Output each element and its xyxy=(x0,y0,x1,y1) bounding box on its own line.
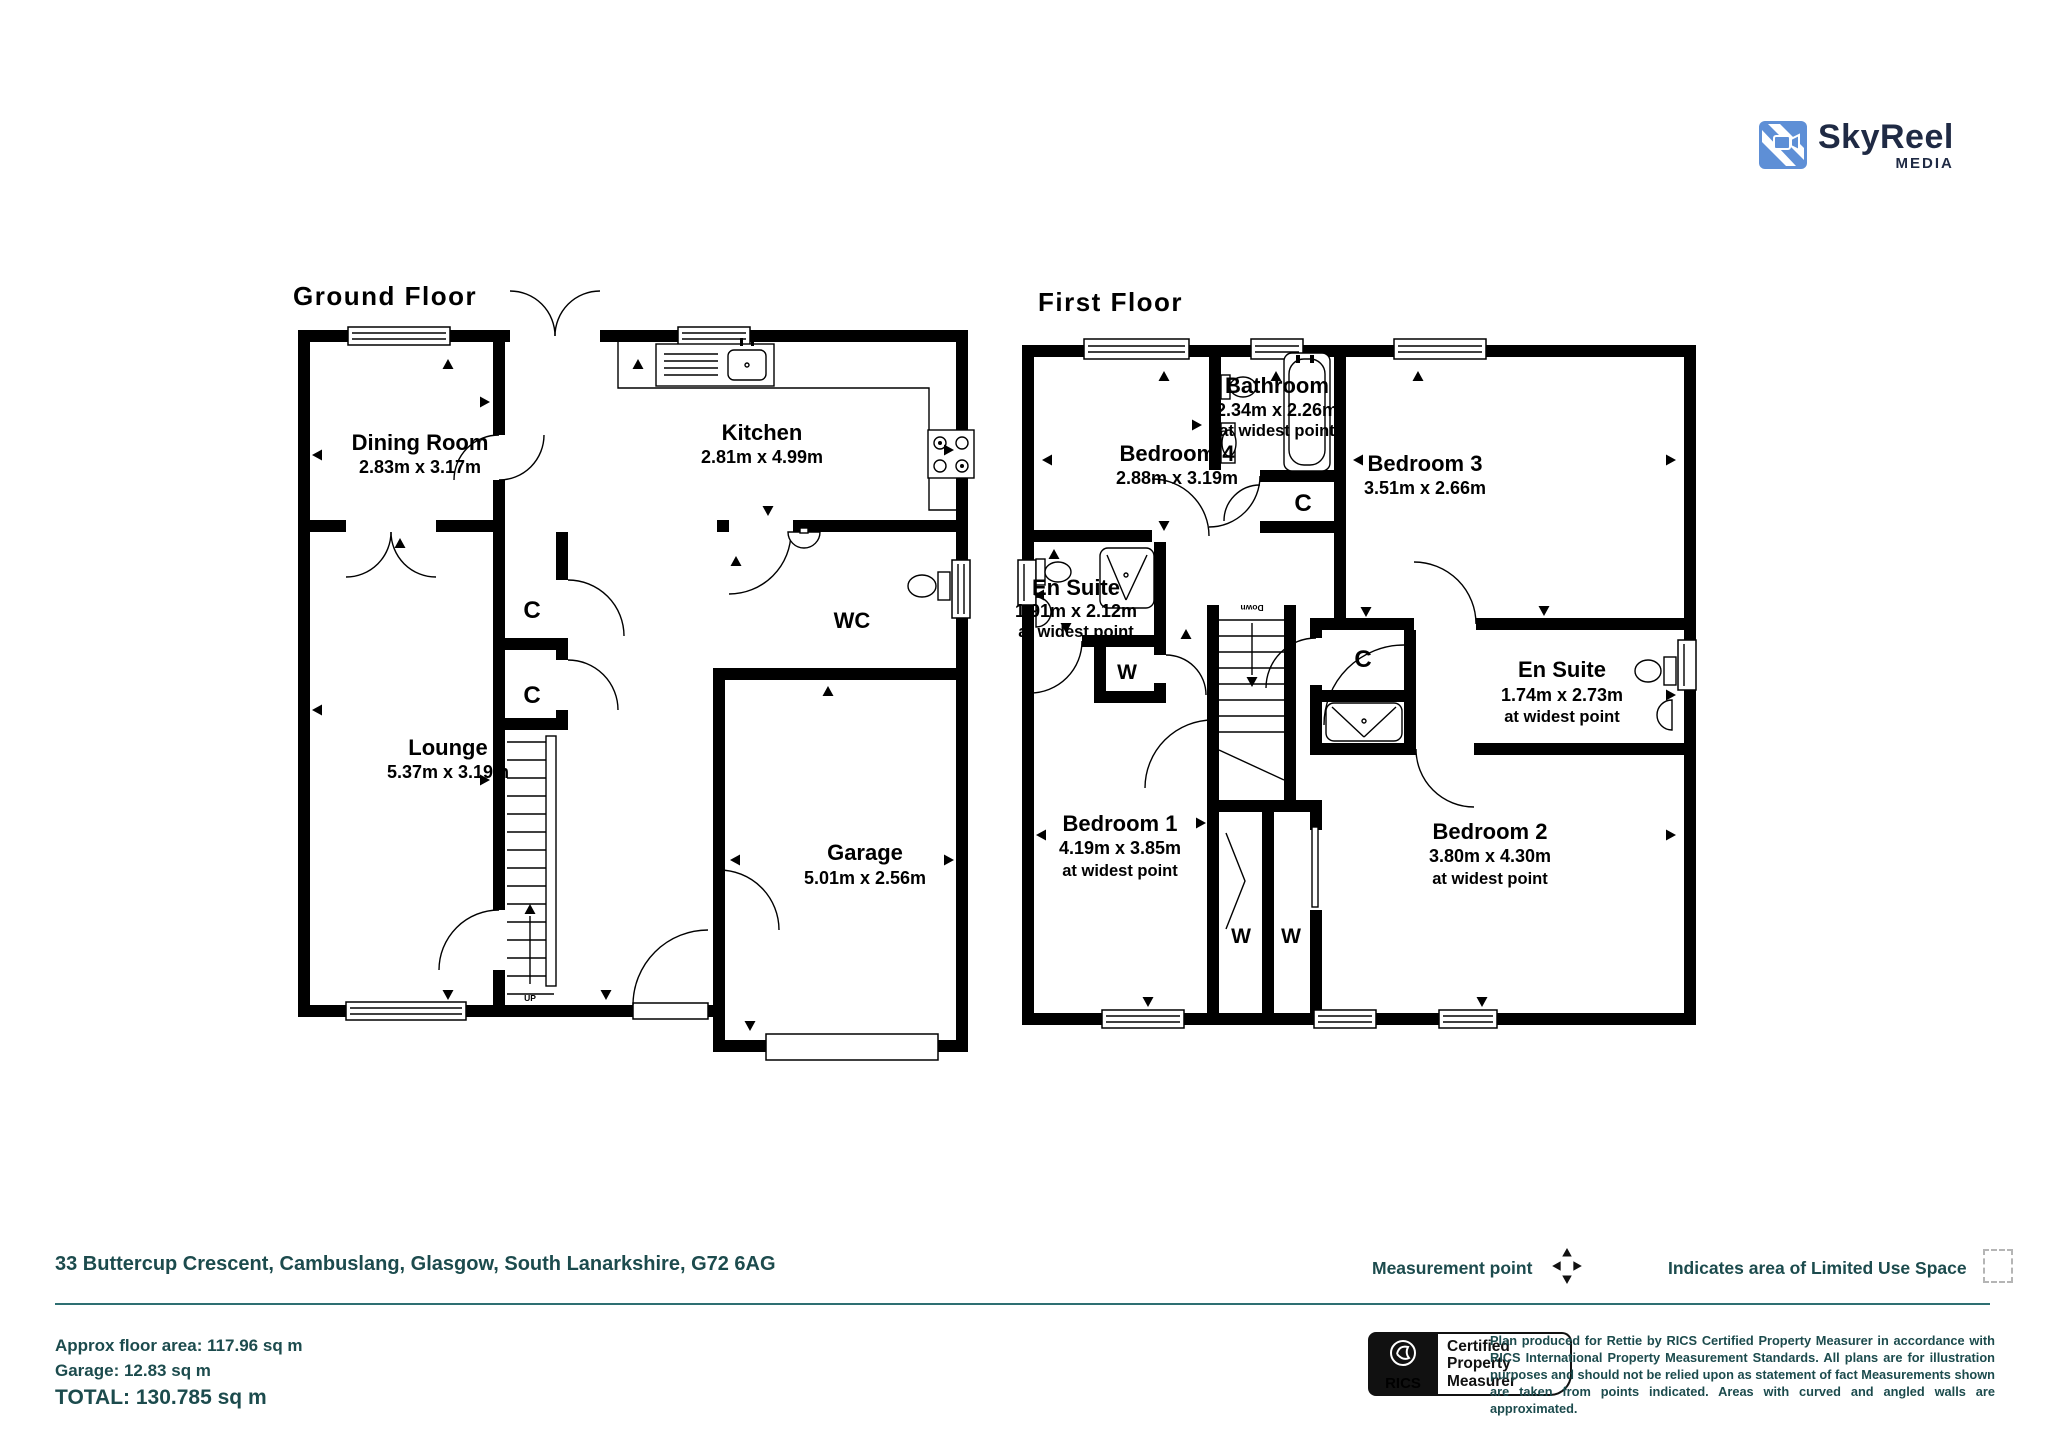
bedroom2-dims: 3.80m x 4.30m xyxy=(1429,846,1551,866)
bedroom2-note: at widest point xyxy=(1432,870,1548,888)
legend-limited-use: Indicates area of Limited Use Space xyxy=(1668,1258,1967,1279)
ensuite2-label: En Suite xyxy=(1518,657,1606,682)
closet-label: C xyxy=(523,682,540,709)
kitchen-label: Kitchen xyxy=(722,420,803,445)
shower-icon xyxy=(1326,703,1402,741)
skyreel-logo: SkyReel MEDIA xyxy=(1758,120,1954,175)
dining-room-label: Dining Room xyxy=(352,430,489,455)
hob-icon xyxy=(928,430,974,478)
ground-stairs: UP xyxy=(507,736,556,1003)
logo-media-label: MEDIA xyxy=(1818,156,1954,171)
rics-label: RICS xyxy=(1385,1375,1421,1392)
floorplan-page: SkyReel MEDIA Ground Floor xyxy=(0,0,2048,1448)
ground-room-labels: Dining Room 2.83m x 3.17m Kitchen 2.81m … xyxy=(352,420,926,888)
ensuite1-note: at widest point xyxy=(1018,623,1134,641)
wc-toilet-icon xyxy=(908,572,950,600)
measurement-point-icon xyxy=(1552,1248,1582,1289)
legend-measurement-point: Measurement point xyxy=(1372,1258,1532,1279)
bedroom4-label: Bedroom 4 xyxy=(1120,441,1236,466)
skyreel-camera-icon xyxy=(1758,120,1808,175)
disclaimer-text: Plan produced for Rettie by RICS Certifi… xyxy=(1490,1333,1995,1417)
garage-dims: 5.01m x 2.56m xyxy=(804,868,926,888)
ground-floor-plan: UP xyxy=(288,270,988,1080)
bedroom4-dims: 2.88m x 3.19m xyxy=(1116,468,1238,488)
bathroom-label: Bathroom xyxy=(1225,373,1329,398)
bathroom-note: at widest point xyxy=(1219,422,1335,440)
ensuite2-note: at widest point xyxy=(1504,708,1620,726)
wc-basin-icon xyxy=(788,532,820,548)
bedroom1-note: at widest point xyxy=(1062,862,1178,880)
bedroom1-dims: 4.19m x 3.85m xyxy=(1059,838,1181,858)
kitchen-dims: 2.81m x 4.99m xyxy=(701,447,823,467)
wardrobe-label: W xyxy=(1281,925,1301,948)
garage-label: Garage xyxy=(827,840,903,865)
sliding-door-icon xyxy=(1312,827,1318,907)
toilet-icon xyxy=(1635,657,1676,685)
limited-use-swatch xyxy=(1983,1249,2013,1283)
lounge-dims: 5.37m x 3.19m xyxy=(387,762,509,782)
bifold-door-icon xyxy=(1226,833,1245,929)
ensuite2-dims: 1.74m x 2.73m xyxy=(1501,685,1623,705)
rics-logo: RICS xyxy=(1368,1332,1438,1396)
wc-fixtures xyxy=(788,528,950,600)
dining-room-dims: 2.83m x 3.17m xyxy=(359,457,481,477)
bedroom2-label: Bedroom 2 xyxy=(1433,819,1548,844)
stairs-up-label: UP xyxy=(524,993,536,1003)
approx-floor-area: Approx floor area: 117.96 sq m xyxy=(55,1336,303,1356)
bathroom-dims: 2.34m x 2.26m xyxy=(1216,400,1338,420)
property-address: 33 Buttercup Crescent, Cambuslang, Glasg… xyxy=(55,1253,776,1276)
closet-label: C xyxy=(1294,490,1311,517)
front-door-threshold xyxy=(633,1003,708,1019)
ensuite1-label: En Suite xyxy=(1032,575,1120,600)
closet-label: C xyxy=(523,597,540,624)
footer-divider xyxy=(55,1303,1990,1305)
bedroom3-dims: 3.51m x 2.66m xyxy=(1364,478,1486,498)
stairs-down-label: Down xyxy=(1240,603,1263,613)
bedroom1-label: Bedroom 1 xyxy=(1063,811,1178,836)
garage-door xyxy=(766,1034,938,1060)
lounge-label: Lounge xyxy=(408,735,487,760)
garage-area: Garage: 12.83 sq m xyxy=(55,1361,211,1381)
basin-icon xyxy=(1657,700,1672,730)
closet-label: C xyxy=(1354,646,1371,673)
logo-name: SkyReel xyxy=(1818,120,1954,154)
total-area: TOTAL: 130.785 sq m xyxy=(55,1386,267,1410)
first-floor-plan: Down xyxy=(1014,275,1704,1040)
wc-label: WC xyxy=(834,608,871,633)
first-stairs: Down xyxy=(1219,603,1284,780)
wardrobe-label: W xyxy=(1231,925,1251,948)
wardrobe-label: W xyxy=(1117,661,1137,684)
bedroom3-label: Bedroom 3 xyxy=(1368,451,1483,476)
ensuite1-dims: 1.91m x 2.12m xyxy=(1015,601,1137,621)
